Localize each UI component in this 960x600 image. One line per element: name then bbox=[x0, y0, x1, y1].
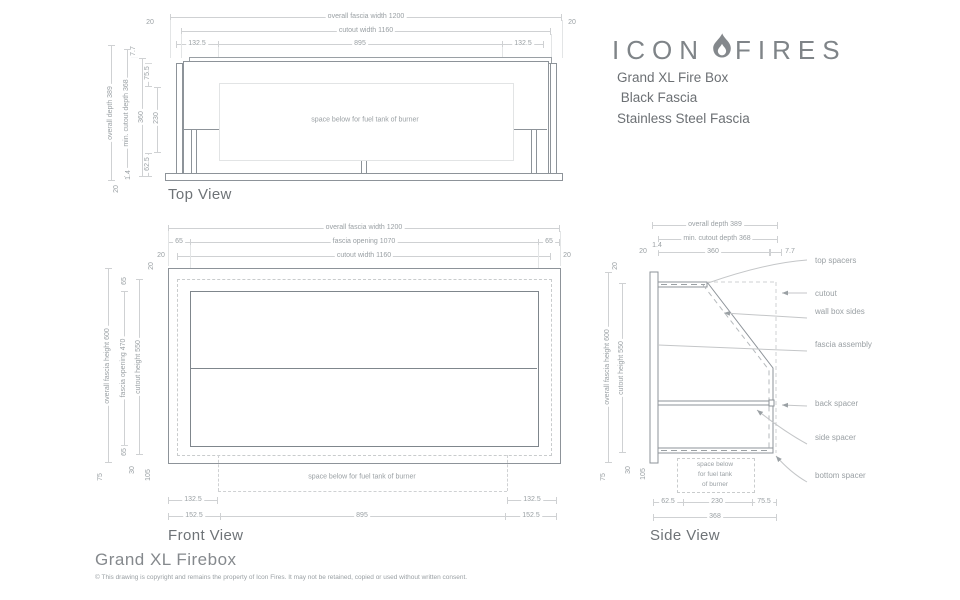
dim-side-230: 230 bbox=[709, 498, 725, 506]
extension-line bbox=[170, 20, 171, 58]
brand-logo-icon-text: ICON bbox=[612, 35, 705, 66]
spacer-post-left bbox=[191, 129, 197, 175]
top-view-title: Top View bbox=[168, 186, 232, 203]
fuel-tank-note-side: space below for fuel tank of burner bbox=[677, 460, 753, 490]
fuel-tank-note-front: space below for fuel tank of burner bbox=[308, 474, 415, 481]
copyright-notice: © This drawing is copyright and remains … bbox=[95, 574, 467, 581]
product-line-3: Stainless Steel Fascia bbox=[617, 109, 750, 129]
dim-front-overall-width: overall fascia width 1200 bbox=[324, 224, 405, 232]
dim-side-min-cutout: min. cutout depth 368 bbox=[681, 235, 752, 243]
extension-line bbox=[551, 34, 552, 58]
product-line-1: Grand XL Fire Box bbox=[617, 68, 750, 88]
dim-front-1525-right: 152.5 bbox=[520, 512, 542, 520]
tick bbox=[683, 499, 684, 506]
dim-top-230: 230 bbox=[153, 110, 161, 126]
dim-front-cutout-width: cutout width 1160 bbox=[335, 252, 393, 260]
callout-wall-box-sides: wall box sides bbox=[815, 307, 877, 318]
callout-bottom-spacer: bottom spacer bbox=[815, 471, 877, 482]
dim-top-360: 360 bbox=[138, 109, 146, 125]
dim-front-1525-left: 152.5 bbox=[183, 512, 205, 520]
leader-top-spacers bbox=[708, 260, 807, 283]
extension-line bbox=[562, 20, 563, 58]
dim-front-b75: 75 bbox=[97, 471, 105, 483]
dim-top-1-4: 1.4 bbox=[125, 168, 133, 182]
dim-front-20-left: 20 bbox=[155, 252, 167, 260]
wall-plate bbox=[165, 173, 563, 181]
fascia-assembly-outer bbox=[707, 282, 773, 453]
callout-fascia-assembly: fascia assembly bbox=[815, 340, 877, 351]
side-spacer-block bbox=[769, 400, 774, 406]
tick bbox=[505, 513, 506, 520]
fascia-assembly-inner bbox=[703, 285, 769, 450]
fuel-tank-note-top: space below for fuel tank of burner bbox=[311, 117, 418, 124]
dim-side-755: 75.5 bbox=[755, 498, 773, 506]
spacer-post-right bbox=[531, 129, 537, 175]
burner-shelf-line bbox=[191, 368, 537, 369]
dim-side-t14: 1.4 bbox=[650, 242, 664, 250]
tick bbox=[752, 499, 753, 506]
sheet-title: Grand XL Firebox bbox=[95, 550, 237, 570]
product-description: Grand XL Fire Box Black Fascia Stainless… bbox=[617, 68, 750, 129]
dim-front-overall-height: overall fascia height 600 bbox=[104, 326, 112, 406]
brand-logo-fires-text: FIRES bbox=[735, 35, 847, 66]
extension-line bbox=[168, 231, 169, 266]
fascia-opening-front bbox=[190, 291, 539, 447]
callout-back-spacer: back spacer bbox=[815, 399, 877, 410]
product-line-2: Black Fascia bbox=[617, 88, 750, 108]
dim-top-margin-left: 20 bbox=[144, 19, 156, 27]
note-line: of burner bbox=[677, 480, 753, 490]
leader-bottom-spacer bbox=[776, 456, 807, 482]
dim-front-t65: 65 bbox=[121, 275, 129, 287]
dim-top-cutout-width: cutout width 1160 bbox=[337, 27, 395, 35]
extension-line bbox=[560, 231, 561, 266]
tick bbox=[220, 513, 221, 520]
dim-side-overall-depth: overall depth 389 bbox=[686, 221, 744, 229]
leader-fascia-assembly bbox=[658, 345, 807, 351]
note-line: for fuel tank bbox=[677, 470, 753, 480]
flame-icon bbox=[711, 33, 733, 68]
dim-top-7-7: 7.7 bbox=[130, 44, 138, 58]
front-view-title: Front View bbox=[168, 527, 243, 544]
extension-line bbox=[181, 34, 182, 58]
side-wall-right bbox=[550, 63, 557, 178]
dim-top-62-5: 62.5 bbox=[144, 155, 152, 173]
brand-logo: ICON FIRES bbox=[612, 33, 847, 68]
dim-front-opening-height: fascia opening 470 bbox=[120, 337, 128, 400]
fuel-zone-dash-left bbox=[218, 455, 220, 491]
dim-front-1325-left: 132.5 bbox=[182, 496, 204, 504]
dim-top-min-cutout-depth: min. cutout depth 368 bbox=[123, 77, 131, 148]
dim-top-margin-right: 20 bbox=[566, 19, 578, 27]
side-view-title: Side View bbox=[650, 527, 720, 544]
drawing-sheet: ICON FIRES Grand XL Fire Box Black Fasci… bbox=[0, 0, 960, 600]
dim-front-895: 895 bbox=[354, 512, 370, 520]
fuel-zone-dash-bottom bbox=[218, 491, 507, 493]
dim-top-overall-depth: overall depth 389 bbox=[107, 84, 115, 142]
side-wall-left bbox=[176, 63, 183, 178]
dim-top-overall-width: overall fascia width 1200 bbox=[326, 13, 407, 21]
dim-top-75-5: 75.5 bbox=[144, 64, 152, 82]
dim-front-b105: 105 bbox=[145, 467, 153, 483]
dim-top-seg-mid: 895 bbox=[352, 40, 368, 48]
dim-front-opening-width: fascia opening 1070 bbox=[331, 238, 398, 246]
back-spacer-bar bbox=[658, 401, 769, 405]
leader-side-spacer bbox=[757, 410, 807, 444]
wall-bar bbox=[650, 272, 658, 463]
dim-top-seg-right: 132.5 bbox=[512, 40, 534, 48]
dim-front-b65: 65 bbox=[121, 446, 129, 458]
note-line: space below bbox=[677, 460, 753, 470]
callout-cutout: cutout bbox=[815, 289, 877, 300]
dim-side-368: 368 bbox=[707, 513, 723, 521]
dim-top-seg-left: 132.5 bbox=[186, 40, 208, 48]
dim-front-b30: 30 bbox=[129, 464, 137, 476]
dim-front-65-right: 65 bbox=[543, 238, 555, 246]
dim-top-20: 20 bbox=[113, 183, 121, 195]
dim-front-cutout-height: cutout height 550 bbox=[135, 338, 143, 396]
dim-side-625: 62.5 bbox=[659, 498, 677, 506]
dim-front-t20: 20 bbox=[148, 260, 156, 272]
leader-wall-box-sides bbox=[724, 313, 807, 318]
callout-side-spacer: side spacer bbox=[815, 433, 877, 444]
dim-front-20-right: 20 bbox=[561, 252, 573, 260]
callout-top-spacers: top spacers bbox=[815, 256, 877, 267]
leader-back-spacer bbox=[782, 405, 807, 406]
dim-front-1325-right: 132.5 bbox=[521, 496, 543, 504]
fuel-zone-dash-right bbox=[507, 455, 509, 491]
dim-front-65-left: 65 bbox=[173, 238, 185, 246]
